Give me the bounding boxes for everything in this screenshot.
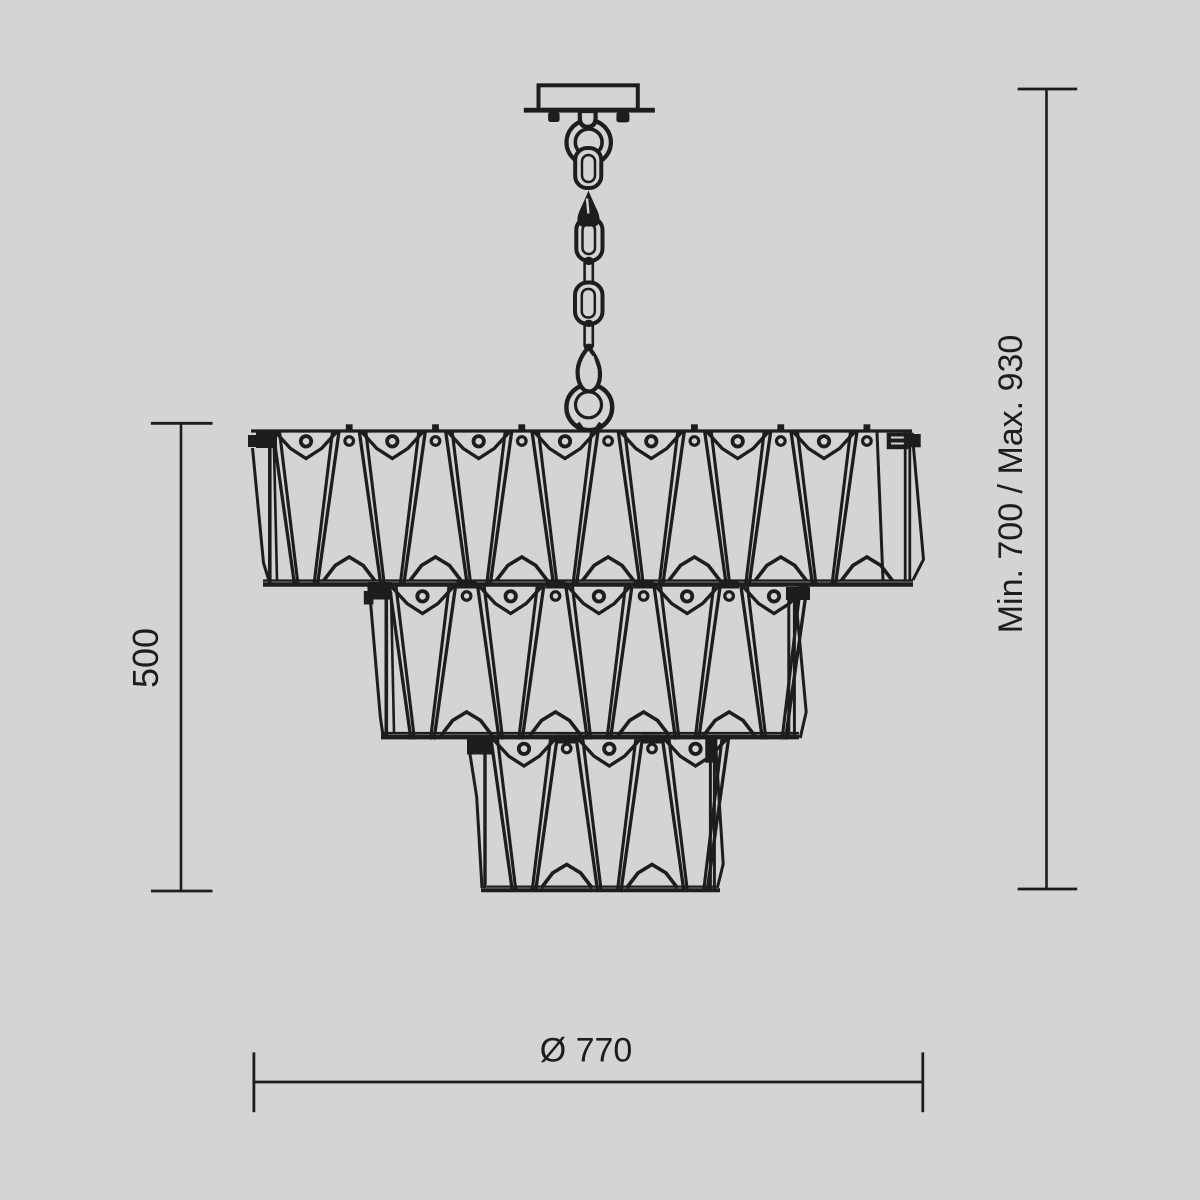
svg-text:500: 500 bbox=[125, 628, 166, 688]
svg-text:Ø 770: Ø 770 bbox=[540, 1032, 633, 1070]
svg-text:Min. 700 / Max. 930: Min. 700 / Max. 930 bbox=[992, 335, 1030, 634]
